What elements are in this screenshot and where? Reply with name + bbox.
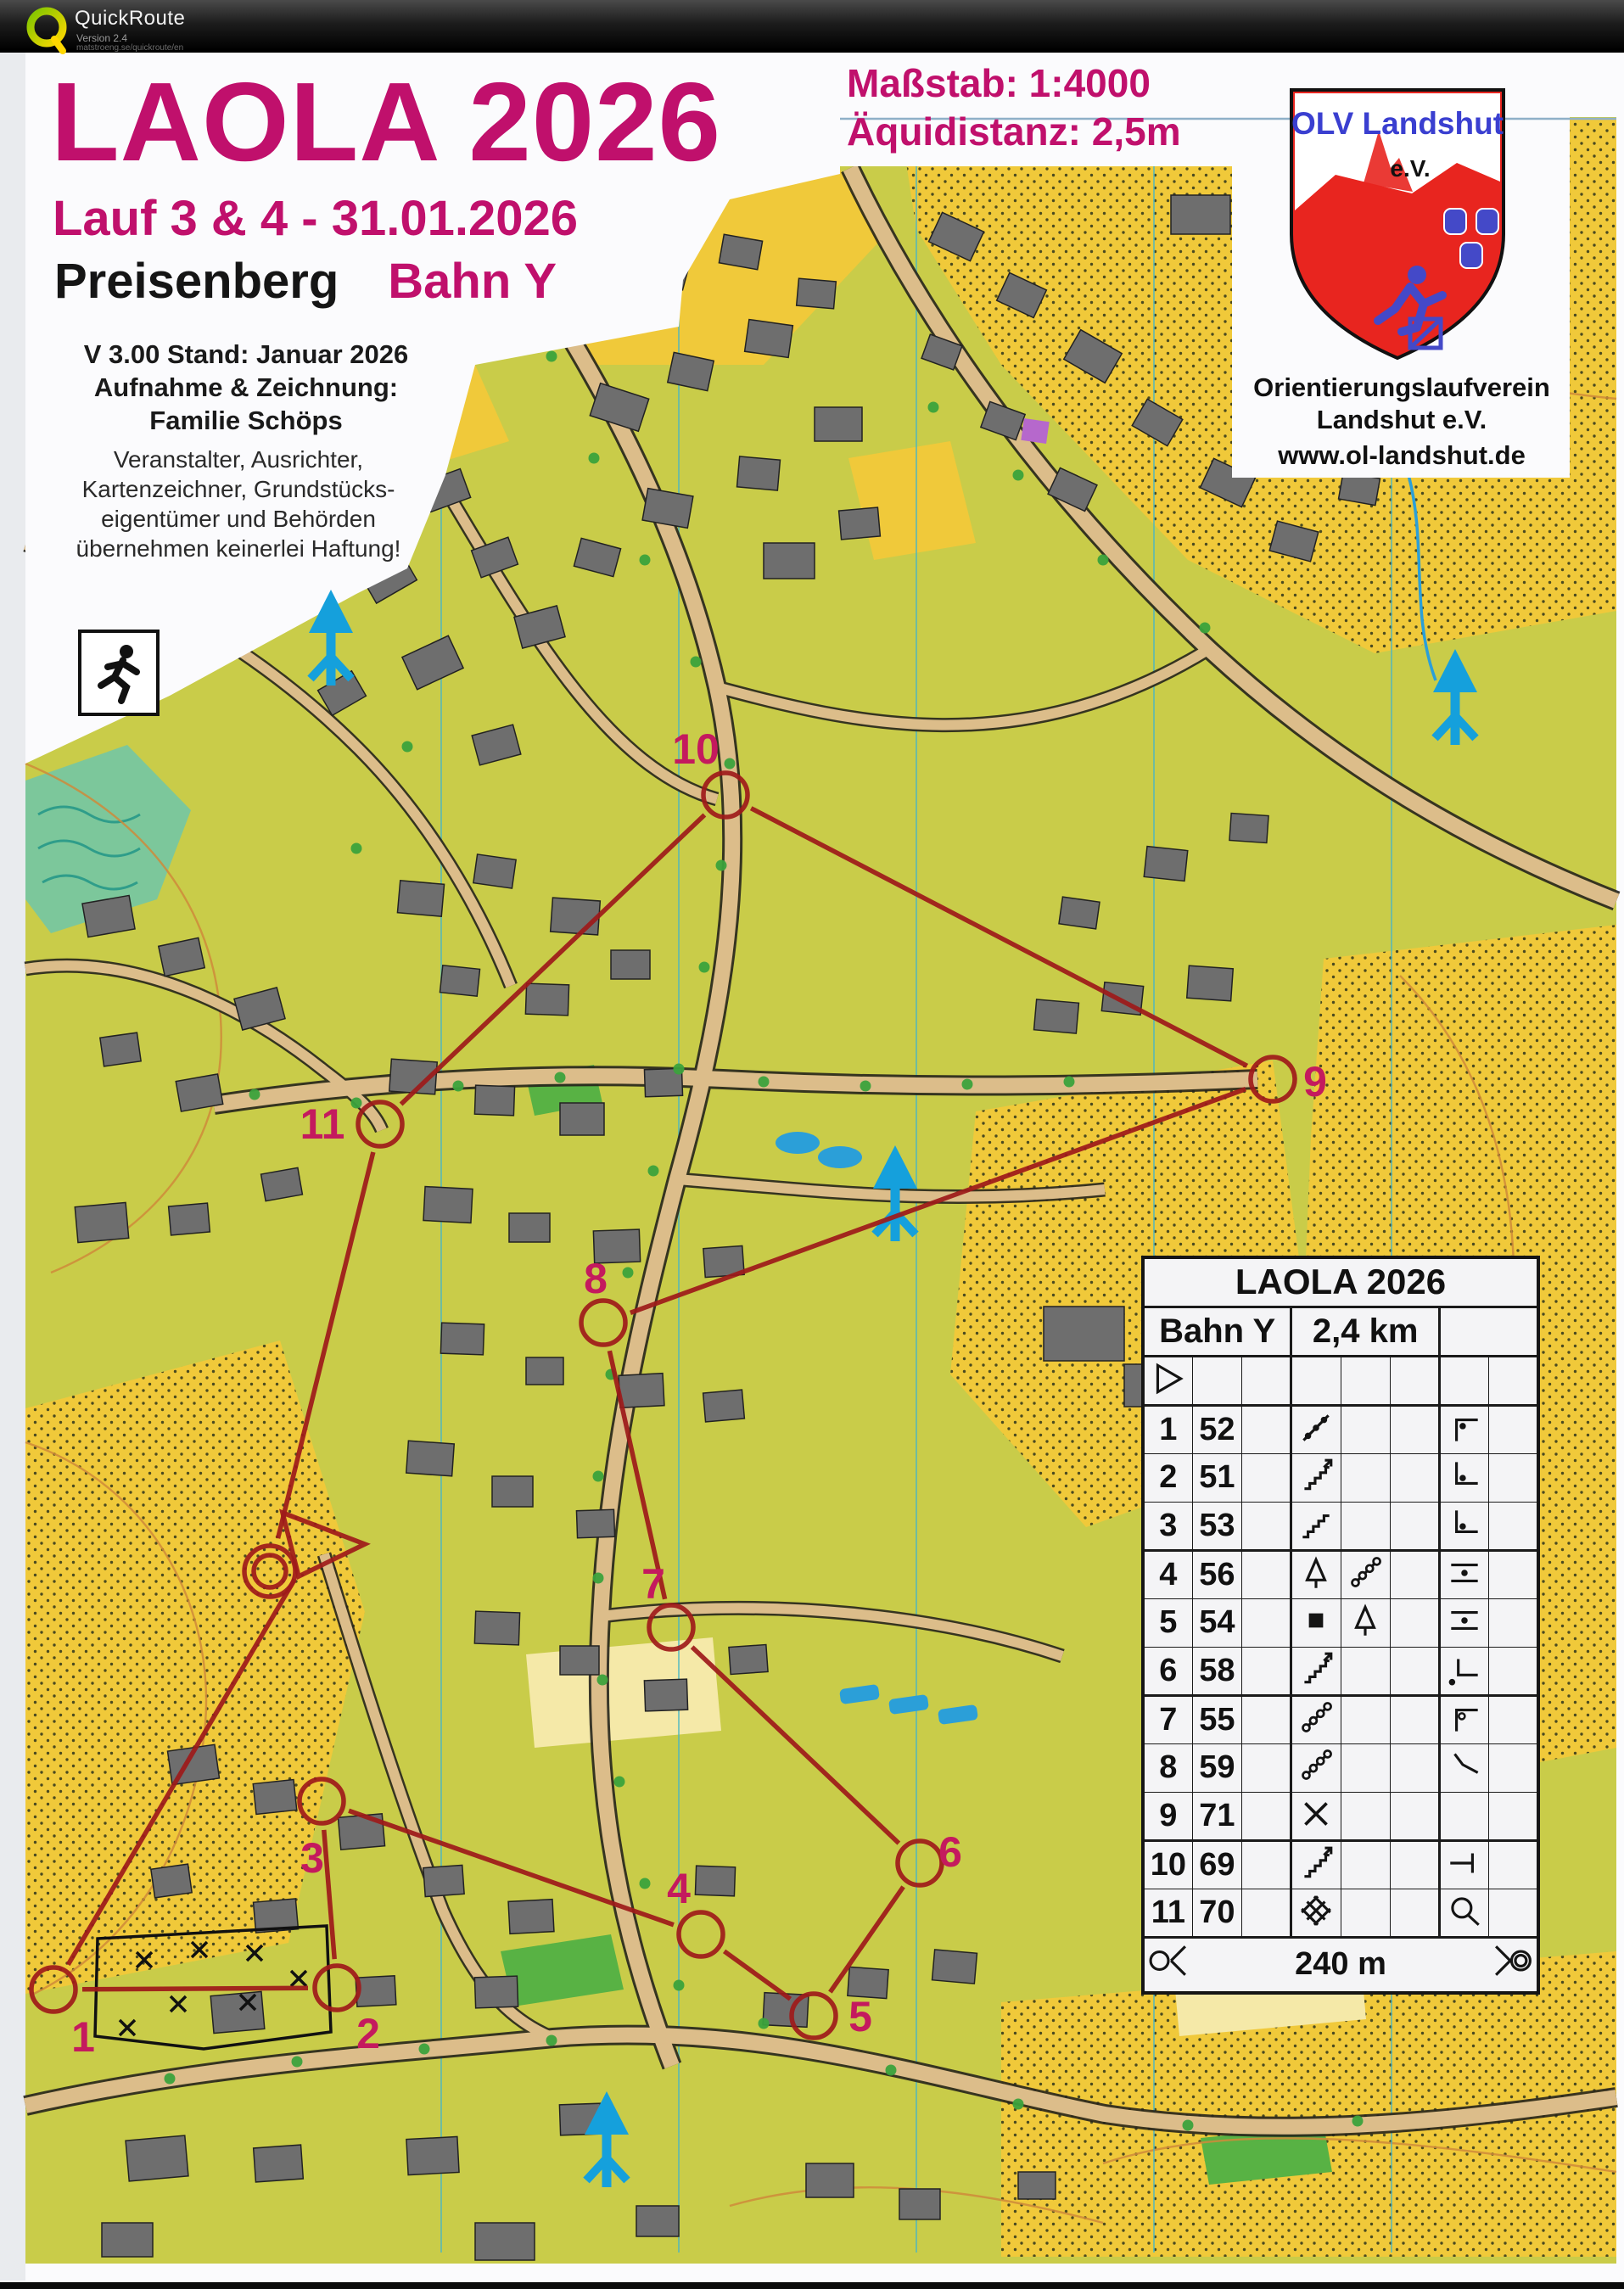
cd-cell	[1489, 1453, 1538, 1502]
cd-cell	[1242, 1405, 1291, 1453]
control-circle	[581, 1301, 625, 1345]
control-circle	[358, 1102, 402, 1146]
cd-symbol-e	[1341, 1405, 1390, 1453]
control-circle	[31, 1967, 76, 2012]
control-circle	[703, 773, 748, 817]
cd-control-code: 59	[1192, 1743, 1241, 1792]
cd-control-code: 70	[1192, 1889, 1241, 1937]
cd-cell	[1242, 1356, 1291, 1405]
start-triangle-icon	[1149, 1359, 1188, 1398]
control-circle	[1251, 1057, 1295, 1101]
cd-symbol-e	[1341, 1792, 1390, 1840]
finish-left-icon	[1149, 1941, 1188, 1980]
cd-symbol-d	[1291, 1743, 1341, 1792]
cd-symbol-g	[1440, 1550, 1489, 1598]
course-leg	[68, 1580, 294, 1965]
cd-cell	[1390, 1840, 1439, 1889]
control-circle	[792, 1994, 836, 2038]
cd-control-code: 54	[1192, 1598, 1241, 1647]
cd-symbol-e	[1341, 1453, 1390, 1502]
course-leg	[725, 1951, 791, 1999]
cd-symbol-g	[1440, 1889, 1489, 1937]
cd-symbol-d	[1291, 1502, 1341, 1550]
control-number: 7	[641, 1560, 665, 1608]
cd-symbol-g	[1440, 1502, 1489, 1550]
cd-cell	[1390, 1405, 1439, 1453]
cd-symbol-d	[1291, 1840, 1341, 1889]
cd-symbol-g	[1440, 1743, 1489, 1792]
cd-symbol-g	[1440, 1695, 1489, 1743]
cd-cell	[1242, 1598, 1291, 1647]
cd-cell	[1390, 1695, 1439, 1743]
cd-cell	[1242, 1453, 1291, 1502]
control-number: 3	[300, 1834, 324, 1882]
control-number: 10	[672, 725, 720, 773]
cd-control-number: 6	[1143, 1647, 1192, 1695]
cd-header-blank	[1440, 1307, 1539, 1356]
cd-cell	[1489, 1356, 1538, 1405]
cd-cell	[1390, 1502, 1439, 1550]
cd-control-number: 7	[1143, 1695, 1192, 1743]
cd-cell	[1390, 1356, 1439, 1405]
cd-finish-right	[1489, 1937, 1538, 1993]
cd-control-number: 2	[1143, 1453, 1192, 1502]
control-number: 11	[300, 1100, 345, 1148]
cd-symbol-g	[1440, 1792, 1489, 1840]
quickroute-logo-icon	[19, 3, 71, 56]
cd-finish-left	[1143, 1937, 1192, 1993]
course-leg	[751, 809, 1247, 1066]
cd-cell	[1242, 1550, 1291, 1598]
cd-symbol-e	[1341, 1550, 1390, 1598]
junction-icon	[1445, 1844, 1484, 1883]
cd-control-code: 55	[1192, 1695, 1241, 1743]
control-circle	[679, 1912, 723, 1956]
cd-cell	[1390, 1598, 1439, 1647]
cd-symbol-g	[1440, 1453, 1489, 1502]
corner-nw-dot-icon	[1445, 1408, 1484, 1447]
between-icon	[1445, 1553, 1484, 1592]
between-icon	[1445, 1601, 1484, 1640]
cd-control-code: 71	[1192, 1792, 1241, 1840]
course-leg	[278, 1152, 373, 1538]
cd-symbol-g	[1440, 1598, 1489, 1647]
cd-control-number: 1	[1143, 1405, 1192, 1453]
control-number: 2	[356, 2010, 380, 2057]
cd-control-code: 58	[1192, 1647, 1241, 1695]
cd-course-name: Bahn Y	[1143, 1307, 1291, 1356]
cd-cell	[1489, 1598, 1538, 1647]
steps-arrow-icon	[1296, 1844, 1336, 1883]
app-version: Version 2.4	[76, 32, 127, 44]
course-leg	[324, 1830, 334, 1959]
cd-symbol-e	[1341, 1502, 1390, 1550]
cd-symbol-g	[1440, 1840, 1489, 1889]
cd-control-number: 5	[1143, 1598, 1192, 1647]
cd-cell	[1390, 1453, 1439, 1502]
crossing-icon	[1296, 1794, 1336, 1833]
cd-cell	[1489, 1889, 1538, 1937]
fence-open-icon	[1296, 1699, 1336, 1738]
cd-cell	[1192, 1356, 1241, 1405]
fence-solid-icon	[1296, 1408, 1336, 1447]
corner-nw-dot-open-icon	[1445, 1699, 1484, 1738]
cd-cell	[1291, 1356, 1341, 1405]
control-number: 8	[584, 1255, 608, 1302]
tree-icon	[1296, 1553, 1336, 1592]
cd-control-number: 4	[1143, 1550, 1192, 1598]
cd-start-cell	[1143, 1356, 1192, 1405]
cd-symbol-g	[1440, 1647, 1489, 1695]
cd-symbol-e	[1341, 1598, 1390, 1647]
cd-cell	[1242, 1502, 1291, 1550]
control-number: 1	[71, 2013, 95, 2061]
cd-cell	[1489, 1695, 1538, 1743]
app-title: QuickRoute	[75, 7, 185, 31]
cd-course-length: 2,4 km	[1291, 1307, 1440, 1356]
corner-sw-dot-icon	[1445, 1456, 1484, 1495]
cd-control-code: 52	[1192, 1405, 1241, 1453]
cd-cell	[1489, 1550, 1538, 1598]
fence-open-icon	[1346, 1553, 1385, 1592]
control-descriptions-card: LAOLA 2026Bahn Y2,4 km152251353456554658…	[1141, 1256, 1540, 1995]
cd-symbol-d	[1291, 1647, 1341, 1695]
cd-cell	[1242, 1840, 1291, 1889]
circle-tail-icon	[1445, 1891, 1484, 1930]
corner-se-dot-icon	[1445, 1649, 1484, 1688]
cd-symbol-d	[1291, 1598, 1341, 1647]
course-leg	[401, 814, 705, 1104]
cd-control-code: 56	[1192, 1550, 1241, 1598]
cd-cell	[1489, 1792, 1538, 1840]
cd-control-number: 11	[1143, 1889, 1192, 1937]
control-number: 5	[848, 1993, 872, 2040]
course-leg	[349, 1810, 674, 1924]
cd-cell	[1341, 1356, 1390, 1405]
cd-control-number: 9	[1143, 1792, 1192, 1840]
cd-control-code: 69	[1192, 1840, 1241, 1889]
tree-icon	[1346, 1601, 1385, 1640]
finish-right-icon	[1493, 1941, 1532, 1980]
building-icon	[1296, 1601, 1336, 1640]
cd-title: LAOLA 2026	[1143, 1257, 1538, 1307]
cd-finish-distance: 240 m	[1192, 1937, 1489, 1993]
cd-symbol-d	[1291, 1550, 1341, 1598]
cd-symbol-e	[1341, 1695, 1390, 1743]
cd-symbol-e	[1341, 1840, 1390, 1889]
cd-symbol-d	[1291, 1405, 1341, 1453]
cd-cell	[1390, 1647, 1439, 1695]
cd-cell	[1489, 1502, 1538, 1550]
cd-cell	[1489, 1840, 1538, 1889]
cd-cell	[1390, 1550, 1439, 1598]
cd-control-code: 53	[1192, 1502, 1241, 1550]
control-number: 6	[938, 1828, 962, 1876]
cd-cell	[1489, 1647, 1538, 1695]
cd-symbol-d	[1291, 1889, 1341, 1937]
course-leg	[830, 1887, 903, 1992]
course-leg	[82, 1988, 308, 1990]
cd-cell	[1390, 1792, 1439, 1840]
cd-cell	[1390, 1743, 1439, 1792]
cd-cell	[1440, 1356, 1489, 1405]
control-circle	[300, 1779, 344, 1823]
cd-symbol-e	[1341, 1889, 1390, 1937]
steps-icon	[1296, 1504, 1336, 1543]
cd-symbol-g	[1440, 1405, 1489, 1453]
app-url[interactable]: matstroeng.se/quickroute/en	[76, 43, 183, 53]
steps-arrow-icon	[1296, 1649, 1336, 1688]
cd-symbol-d	[1291, 1695, 1341, 1743]
cd-control-number: 3	[1143, 1502, 1192, 1550]
cd-symbol-e	[1341, 1743, 1390, 1792]
thicket-icon	[1296, 1891, 1336, 1930]
cd-symbol-e	[1341, 1647, 1390, 1695]
control-number: 9	[1303, 1058, 1327, 1105]
bend-icon	[1445, 1746, 1484, 1785]
cd-control-number: 10	[1143, 1840, 1192, 1889]
cd-control-number: 8	[1143, 1743, 1192, 1792]
control-circle	[315, 1966, 359, 2010]
control-circle	[649, 1605, 693, 1649]
cd-cell	[1242, 1889, 1291, 1937]
cd-cell	[1390, 1889, 1439, 1937]
cd-symbol-d	[1291, 1453, 1341, 1502]
cd-symbol-d	[1291, 1792, 1341, 1840]
fence-open-icon	[1296, 1746, 1336, 1785]
cd-cell	[1242, 1743, 1291, 1792]
cd-control-code: 51	[1192, 1453, 1241, 1502]
cd-cell	[1489, 1405, 1538, 1453]
cd-cell	[1242, 1695, 1291, 1743]
course-leg	[692, 1647, 899, 1843]
app-header: QuickRoute Version 2.4 matstroeng.se/qui…	[0, 0, 1624, 53]
cd-cell	[1489, 1743, 1538, 1792]
corner-sw-dot-icon	[1445, 1504, 1484, 1543]
cd-cell	[1242, 1792, 1291, 1840]
control-circle	[898, 1841, 942, 1885]
control-number: 4	[667, 1865, 691, 1912]
cd-cell	[1242, 1647, 1291, 1695]
finish-circles	[254, 1555, 286, 1587]
steps-arrow-icon	[1296, 1456, 1336, 1495]
